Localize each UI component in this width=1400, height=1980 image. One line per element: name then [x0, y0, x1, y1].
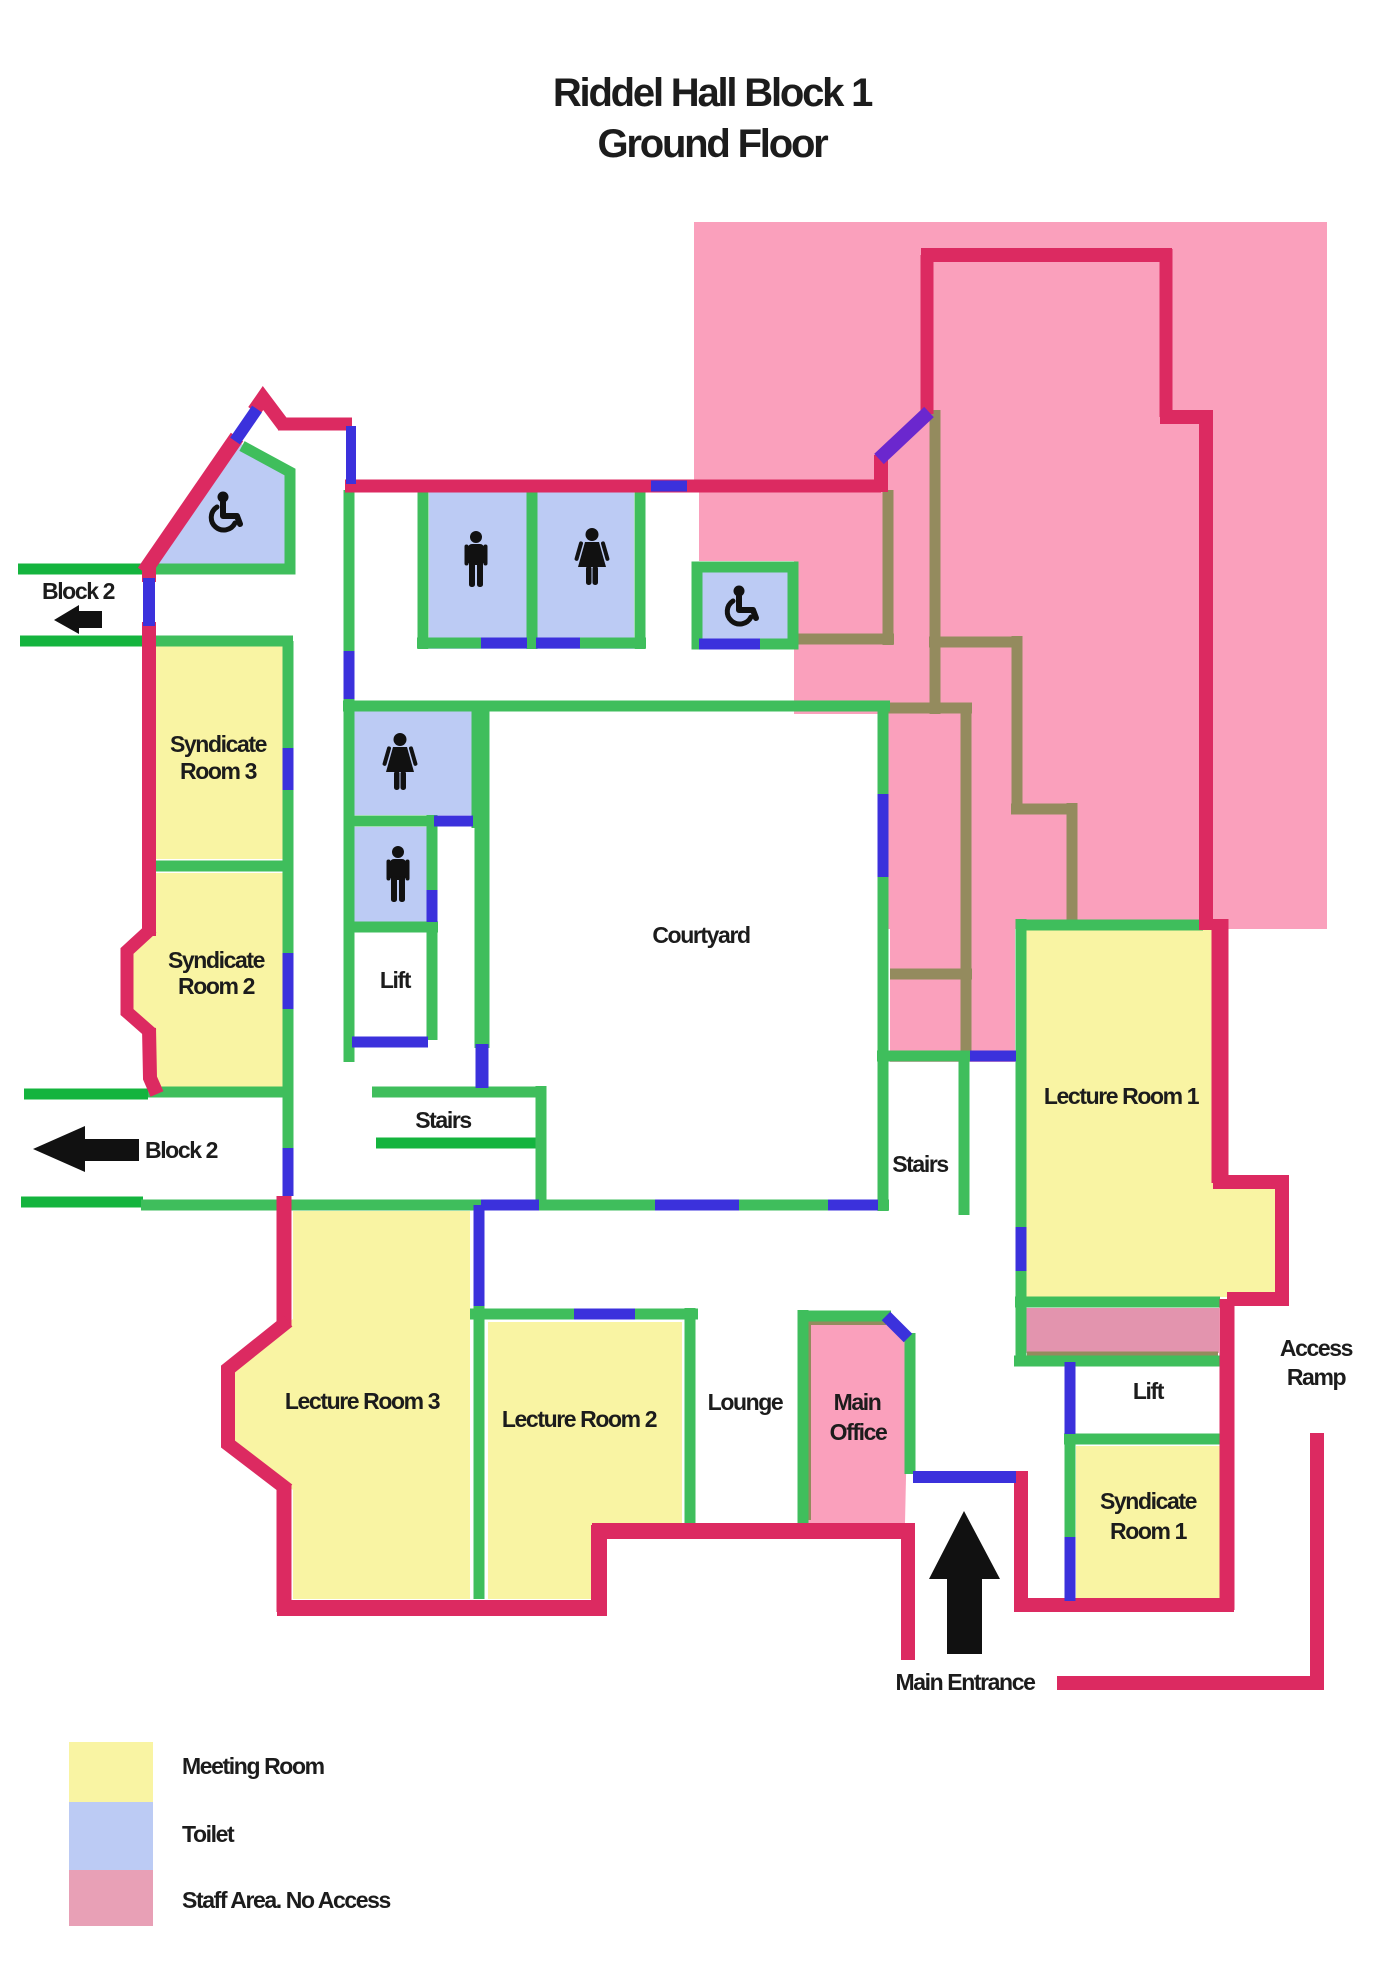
- svg-text:Block 2: Block 2: [42, 578, 115, 604]
- svg-text:Courtyard: Courtyard: [652, 922, 750, 948]
- svg-text:Lecture Room 3: Lecture Room 3: [285, 1388, 440, 1414]
- svg-text:Stairs: Stairs: [415, 1107, 471, 1133]
- svg-text:Toilet: Toilet: [182, 1821, 235, 1847]
- svg-text:Syndicate: Syndicate: [1100, 1488, 1197, 1514]
- svg-text:Room 3: Room 3: [180, 758, 257, 784]
- svg-text:Lecture Room 1: Lecture Room 1: [1044, 1083, 1200, 1109]
- svg-text:Lift: Lift: [1133, 1378, 1165, 1404]
- svg-text:Syndicate: Syndicate: [170, 731, 267, 757]
- svg-text:Ground Floor: Ground Floor: [597, 122, 828, 166]
- svg-text:Main Entrance: Main Entrance: [895, 1669, 1035, 1695]
- svg-text:Access: Access: [1280, 1335, 1353, 1361]
- svg-text:Main: Main: [834, 1389, 881, 1415]
- svg-text:Riddel Hall Block 1: Riddel Hall Block 1: [553, 71, 873, 115]
- svg-text:Office: Office: [830, 1419, 887, 1445]
- svg-text:Lounge: Lounge: [708, 1389, 783, 1415]
- svg-text:Staff Area. No Access: Staff Area. No Access: [182, 1887, 391, 1913]
- svg-text:Block 2: Block 2: [145, 1137, 218, 1163]
- svg-text:Meeting Room: Meeting Room: [182, 1753, 325, 1779]
- svg-text:Lift: Lift: [380, 967, 412, 993]
- svg-text:Room 2: Room 2: [178, 973, 255, 999]
- svg-text:Lecture Room 2: Lecture Room 2: [502, 1406, 657, 1432]
- svg-text:Syndicate: Syndicate: [168, 947, 265, 973]
- svg-text:Stairs: Stairs: [892, 1151, 948, 1177]
- svg-text:Room 1: Room 1: [1110, 1518, 1188, 1544]
- svg-text:Ramp: Ramp: [1287, 1364, 1347, 1390]
